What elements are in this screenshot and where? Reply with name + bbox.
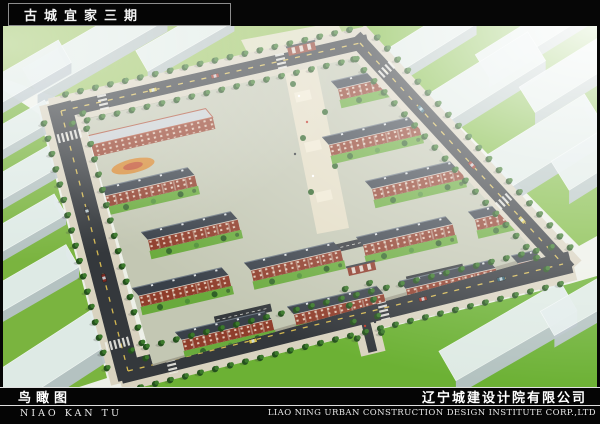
site-plan-svg: [3, 26, 597, 389]
footer-bar: 鸟瞰图 辽宁城建设计院有限公司 NIAO KAN TU LIAO NING UR…: [0, 387, 600, 424]
company-english: LIAO NING URBAN CONSTRUCTION DESIGN INST…: [268, 408, 596, 418]
footer-row-main: 鸟瞰图 辽宁城建设计院有限公司: [0, 388, 600, 406]
caption-chinese: 鸟瞰图: [18, 387, 72, 406]
project-title: 古城宜家三期: [24, 5, 144, 24]
company-chinese: 辽宁城建设计院有限公司: [422, 387, 587, 406]
top-black-bar: 古城宜家三期: [0, 0, 600, 26]
footer-row-latin: NIAO KAN TU LIAO NING URBAN CONSTRUCTION…: [0, 406, 600, 420]
project-title-box: 古城宜家三期: [8, 3, 231, 26]
caption-pinyin: NIAO KAN TU: [20, 408, 122, 419]
presentation-board: 古城宜家三期 鸟瞰图 辽宁城建设计院有限公司 NIAO KAN TU LIAO …: [0, 0, 600, 424]
rendering-area: [3, 26, 597, 389]
